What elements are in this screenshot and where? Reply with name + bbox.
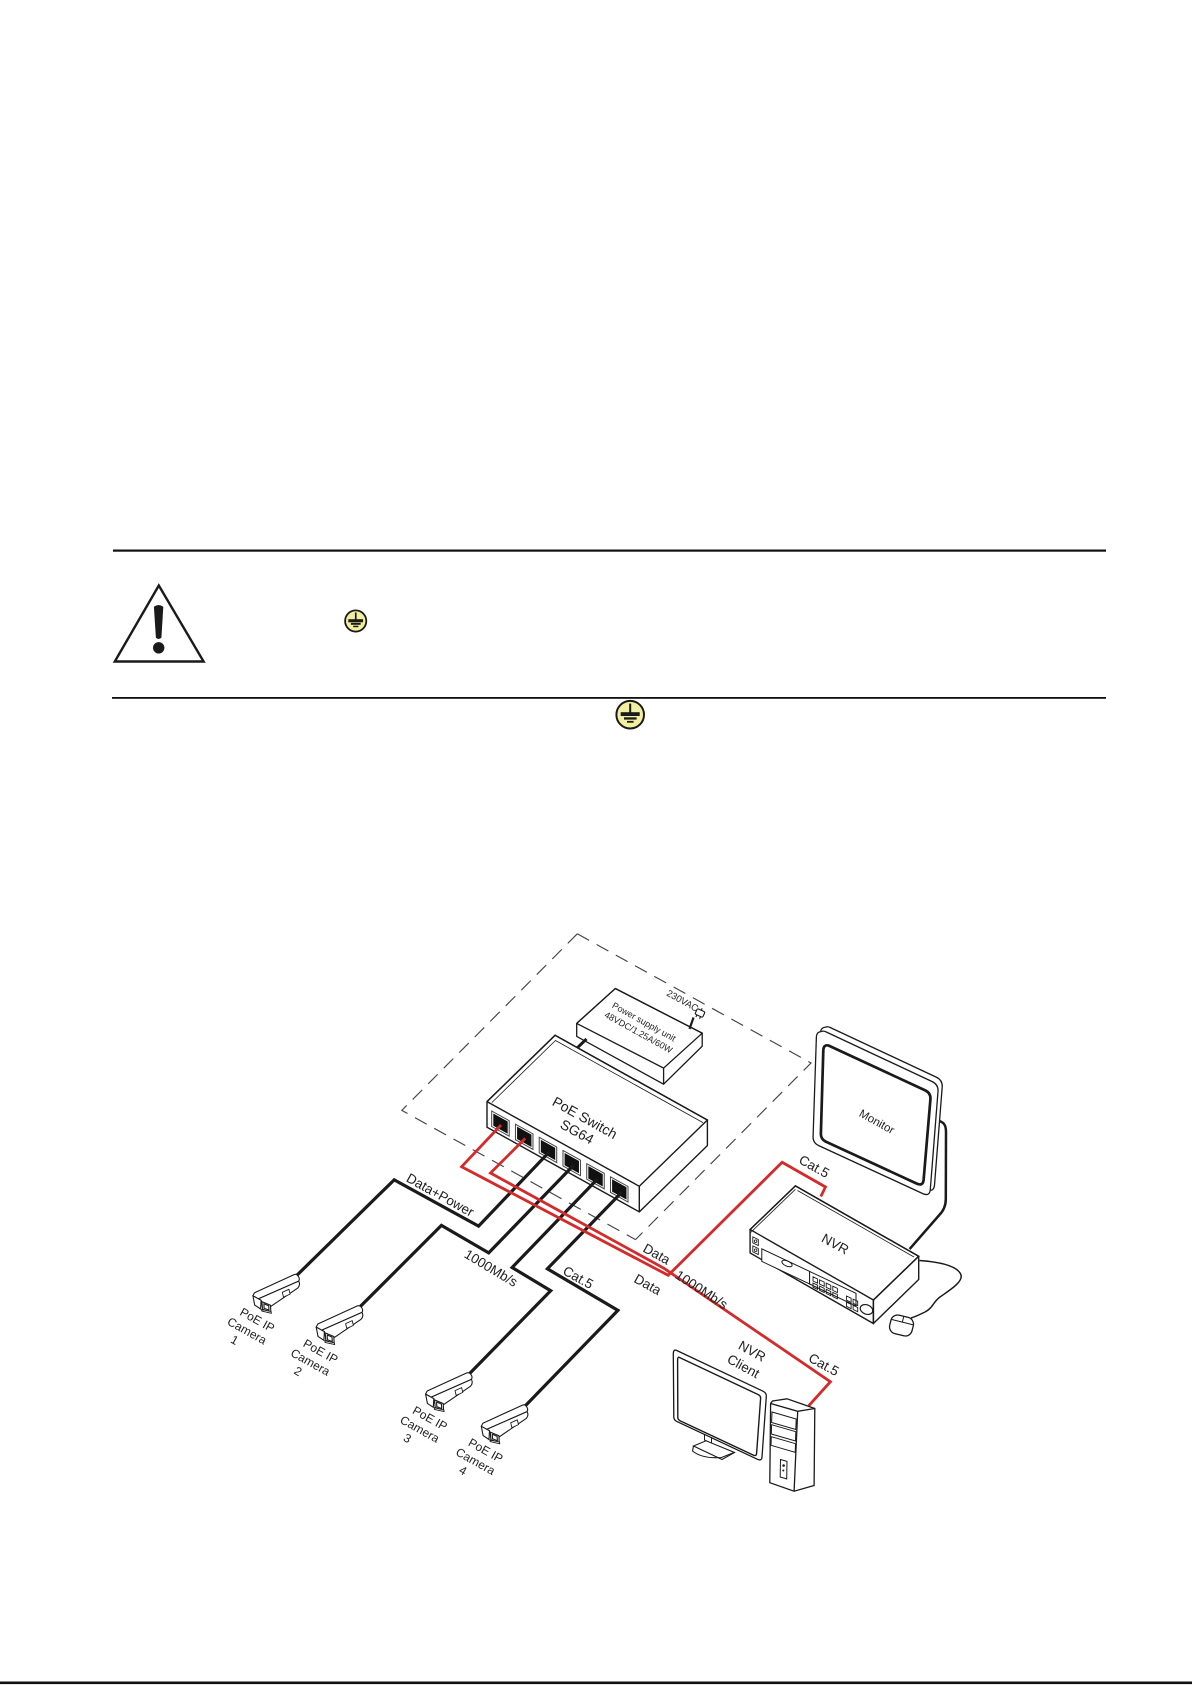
svg-text:Cat.5: Cat.5 [796, 1152, 832, 1181]
svg-text:Cat.5: Cat.5 [806, 1350, 842, 1379]
svg-text:Data+Power: Data+Power [404, 1170, 477, 1220]
svg-text:2: 2 [292, 1364, 305, 1380]
svg-text:1000Mb/s: 1000Mb/s [673, 1267, 731, 1312]
svg-text:4: 4 [457, 1463, 470, 1479]
svg-text:1: 1 [228, 1332, 241, 1348]
svg-text:Data: Data [632, 1271, 665, 1298]
svg-text:3: 3 [401, 1431, 414, 1447]
